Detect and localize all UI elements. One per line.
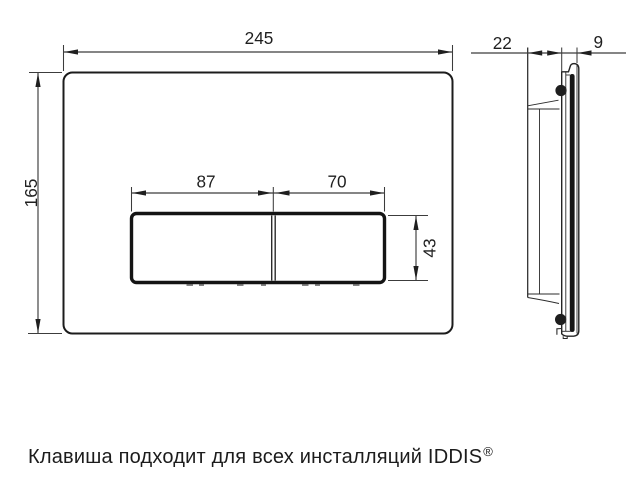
front-view: 245 165 87 70 — [21, 28, 453, 334]
flush-plate-drawing: 245 165 87 70 — [0, 0, 629, 488]
compatibility-caption: Клавиша подходит для всех инсталляций ID… — [28, 444, 493, 469]
right-button-width-label: 70 — [327, 172, 346, 192]
flush-buttons-outline — [132, 214, 385, 283]
mounting-pin-top — [555, 85, 566, 96]
dimension-plate-width: 245 — [64, 28, 453, 71]
dimension-depth-and-thickness: 22 9 — [471, 32, 626, 71]
side-view: 22 9 — [471, 32, 626, 338]
plate-width-label: 245 — [245, 28, 274, 48]
registered-trademark-symbol: ® — [483, 444, 493, 459]
mounting-pin-bottom — [555, 314, 566, 325]
plate-front-outline — [64, 73, 453, 334]
button-height-label: 43 — [419, 238, 439, 257]
caption-text: Клавиша подходит для всех инсталляций ID… — [28, 446, 482, 468]
plate-front-face-edge — [570, 74, 575, 332]
plate-thickness-label: 9 — [594, 32, 604, 52]
housing-profile — [528, 48, 560, 304]
technical-drawing-page: 245 165 87 70 — [0, 0, 629, 488]
plate-side-profile — [555, 64, 579, 339]
dimension-plate-height: 165 — [21, 73, 62, 334]
left-button-width-label: 87 — [196, 172, 215, 192]
plate-height-label: 165 — [21, 179, 41, 208]
depth-label: 22 — [493, 33, 512, 53]
